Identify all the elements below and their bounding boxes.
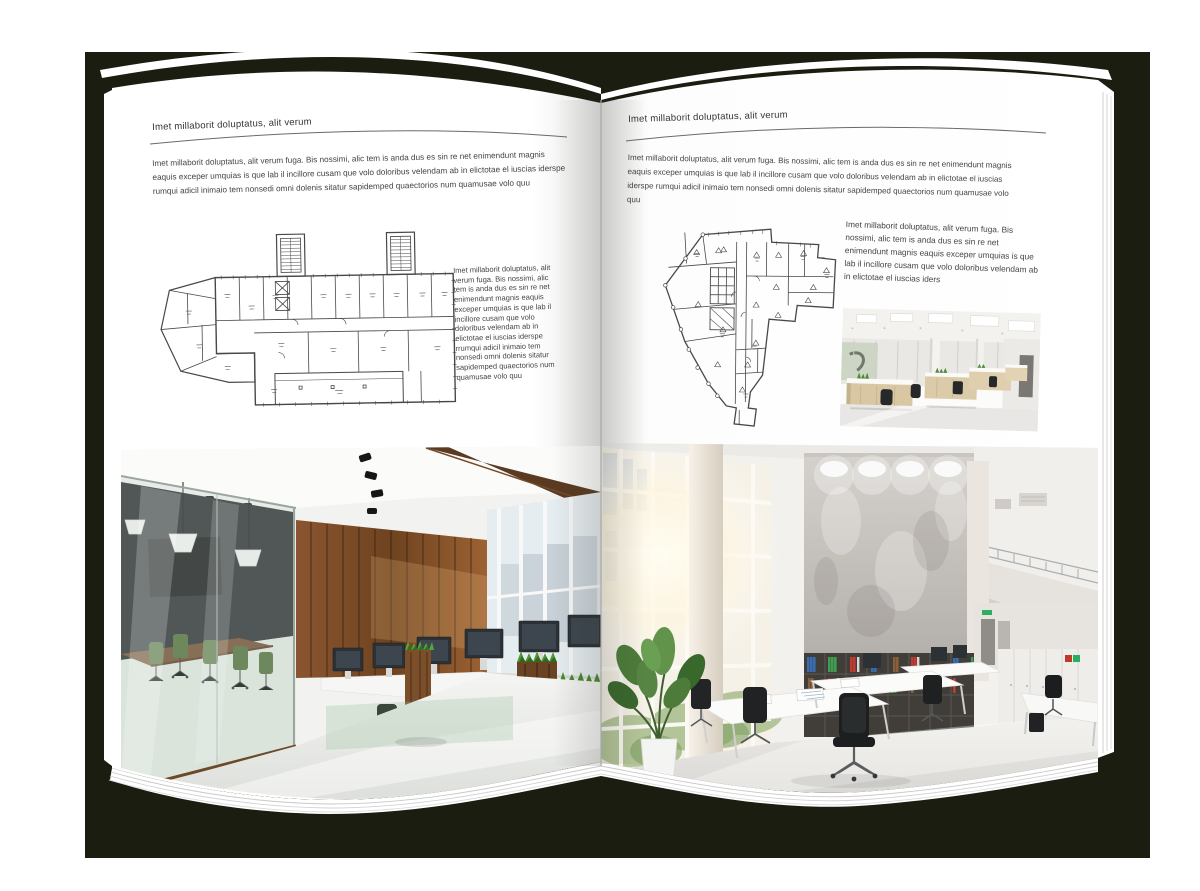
small-office-photo [840, 308, 1041, 431]
floor-plan-drawing [159, 231, 457, 408]
concrete-wall [804, 453, 974, 653]
round-column [689, 441, 723, 797]
right-page-caption: Imet millaborit doluptatus, alit verum f… [844, 218, 1042, 290]
left-floor-plan [156, 228, 459, 419]
right-floor-plan [647, 221, 845, 428]
stair-tower-icon [386, 232, 415, 274]
left-office-photo [121, 446, 601, 806]
left-page-caption: Imet millaborit doluptatus, alit verum f… [453, 263, 561, 383]
right-office-photo [601, 441, 1098, 801]
right-page-intro: Imet millaborit doluptatus, alit verum f… [627, 151, 1020, 215]
exit-sign [982, 610, 992, 615]
floor-plan-drawing [662, 228, 836, 426]
magazine-mockup: Imet millaborit doluptatus, alit verum I… [0, 0, 1200, 891]
stair-tower-icon [276, 234, 305, 276]
facade-columns [663, 232, 721, 397]
room-labels [185, 291, 449, 397]
window-ticks [221, 271, 457, 407]
meeting-room [121, 476, 296, 794]
room-markers [692, 247, 829, 393]
